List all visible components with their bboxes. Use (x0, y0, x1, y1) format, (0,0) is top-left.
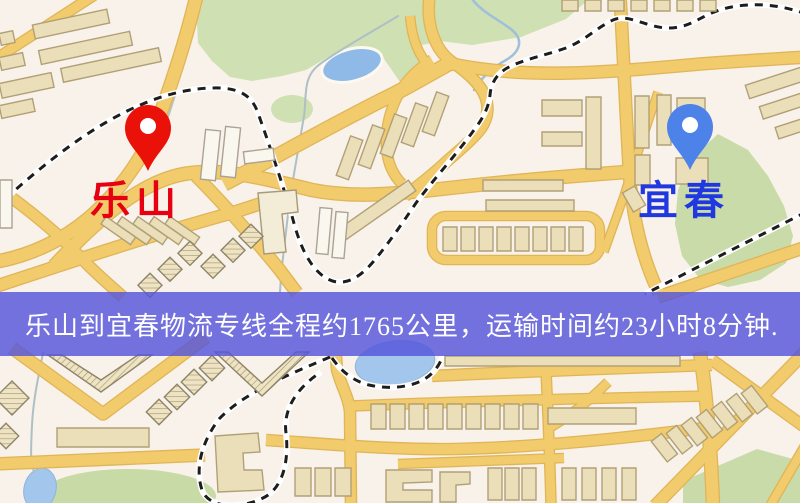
building (0, 31, 15, 46)
building (315, 468, 331, 496)
building (631, 0, 647, 11)
map-screenshot: 乐山 宜春 乐山到宜春物流专线全程约1765公里，运输时间约23小时8分钟. (0, 0, 800, 503)
building (0, 180, 12, 228)
building (390, 404, 405, 429)
building (295, 468, 311, 496)
building (533, 227, 547, 251)
building (542, 100, 582, 116)
map-canvas (0, 0, 800, 503)
destination-city-label: 宜春 (638, 181, 730, 221)
origin-city-label: 乐山 (90, 181, 182, 221)
building (515, 227, 529, 251)
building (548, 408, 636, 424)
building (497, 227, 511, 251)
building (461, 227, 475, 251)
building (483, 180, 563, 191)
building (608, 0, 624, 11)
building (677, 0, 693, 11)
building (505, 468, 519, 500)
building (428, 404, 443, 429)
building (582, 468, 596, 500)
building (542, 132, 582, 146)
building (504, 404, 519, 429)
building (486, 200, 574, 211)
building (569, 227, 583, 251)
road (546, 370, 551, 503)
building (585, 0, 601, 11)
building (485, 404, 500, 429)
building (443, 227, 457, 251)
route-info-text: 乐山到宜春物流专线全程约1765公里，运输时间约23小时8分钟. (0, 306, 779, 343)
building (523, 404, 538, 429)
building (654, 0, 670, 11)
building (562, 468, 576, 500)
building (700, 0, 716, 11)
building (57, 428, 149, 447)
building (445, 356, 680, 366)
building (488, 468, 502, 500)
building (602, 468, 616, 500)
pin-hole (682, 117, 698, 133)
pin-hole (140, 118, 156, 134)
building (409, 404, 424, 429)
building (447, 404, 462, 429)
building (335, 468, 351, 496)
building (586, 97, 601, 169)
building (466, 404, 481, 429)
route-info-banner: 乐山到宜春物流专线全程约1765公里，运输时间约23小时8分钟. (0, 292, 800, 356)
building (622, 468, 636, 500)
building (522, 468, 536, 500)
building (371, 404, 386, 429)
building (479, 227, 493, 251)
building (551, 227, 565, 251)
building (562, 0, 578, 11)
park (271, 95, 313, 123)
building (635, 96, 649, 148)
